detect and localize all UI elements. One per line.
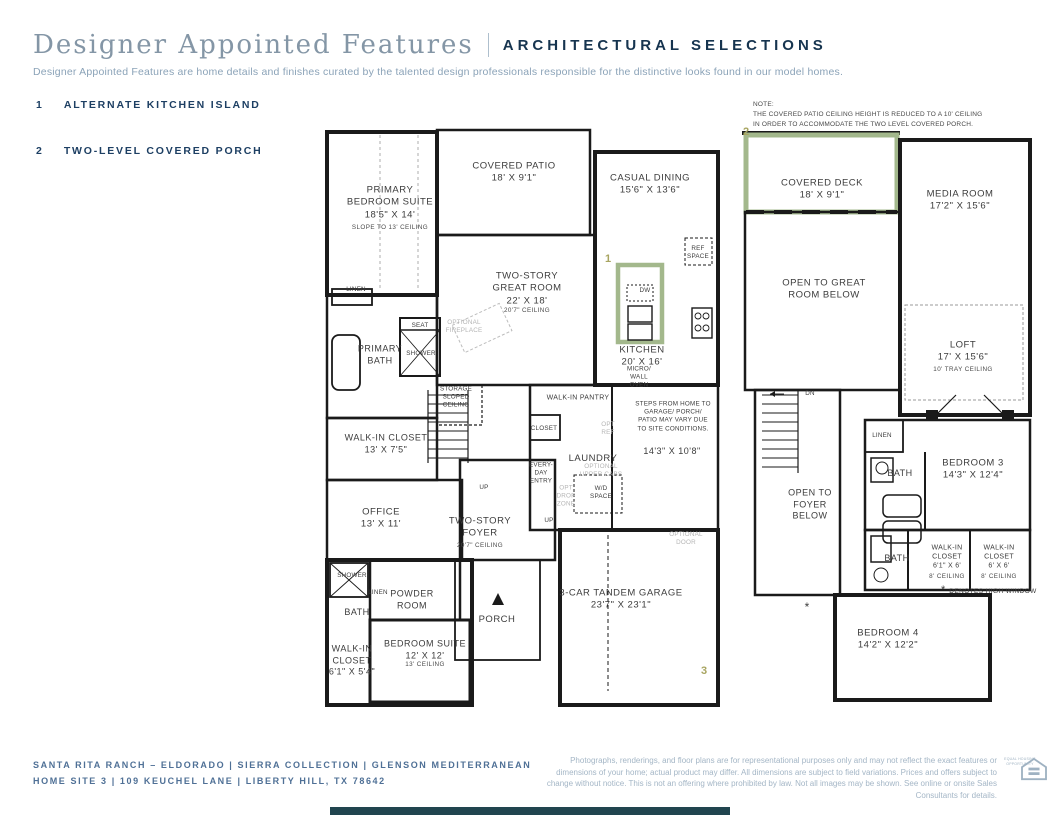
feature-marker-3: 3 — [701, 665, 707, 677]
page-title: Designer Appointed Features — [33, 30, 474, 60]
label-primary-suite: PRIMARY BEDROOM SUITE 18'5" X 14' — [347, 184, 433, 221]
label-bedroom-suite: BEDROOM SUITE 12' X 12' — [384, 638, 466, 661]
label-primary-bath: PRIMARY BATH — [358, 343, 402, 366]
label-media-room: MEDIA ROOM 17'2" X 15'6" — [927, 189, 994, 214]
footer-address-block: SANTA RITA RANCH – ELDORADO | SIERRA COL… — [33, 757, 531, 789]
label-covered-patio: COVERED PATIO 18' X 9'1" — [472, 161, 555, 186]
label-up-1: UP — [544, 517, 553, 525]
equal-housing-logo: EQUAL HOUSING OPPORTUNITY — [1003, 757, 1037, 766]
asterisk-mark: * — [941, 585, 945, 596]
label-covered-deck: COVERED DECK 18' X 9'1" — [781, 178, 863, 203]
label-walk-in-closet-4: WALK-IN CLOSET 6' X 6' — [983, 543, 1014, 570]
feature-label: ALTERNATE KITCHEN ISLAND — [64, 99, 261, 111]
label-walk-in-closet-1: WALK-IN CLOSET 13' X 7'5" — [345, 432, 428, 455]
label-walk-in-closet-3: WALK-IN CLOSET 6'1" X 6' — [931, 543, 962, 570]
label-walk-in-closet-3-ceiling: 8' CEILING — [929, 573, 965, 581]
label-great-room: TWO-STORY GREAT ROOM 22' X 18' — [492, 270, 561, 307]
plan-note: NOTE: THE COVERED PATIO CEILING HEIGHT I… — [753, 100, 982, 129]
label-walk-in-closet-4-ceiling: 8' CEILING — [981, 573, 1017, 581]
equal-housing-house-icon — [1020, 757, 1048, 781]
label-shower-2: SHOWER — [337, 572, 367, 580]
label-foyer: TWO-STORY FOYER — [449, 516, 511, 541]
label-ref-space: REF SPACE — [687, 245, 709, 261]
feature-marker-2: 2 — [743, 126, 749, 138]
label-shower-1: SHOWER — [406, 350, 436, 358]
label-dishwasher: DW — [640, 287, 651, 295]
label-loft-ceiling: 10' TRAY CEILING — [933, 366, 992, 374]
label-linen-3: LINEN — [872, 432, 892, 440]
page-edge-bar — [330, 807, 730, 815]
label-steps-note: STEPS FROM HOME TO GARAGE/ PORCH/ PATIO … — [635, 401, 710, 434]
page-header: Designer Appointed Features ARCHITECTURA… — [33, 30, 827, 60]
section-title: ARCHITECTURAL SELECTIONS — [503, 37, 827, 54]
label-up-2: UP — [479, 484, 488, 492]
title-divider — [488, 33, 489, 57]
label-great-room-ceiling: 20'7" CEILING — [504, 307, 550, 315]
label-walk-in-pantry: WALK-IN PANTRY — [547, 393, 610, 402]
label-foyer-ceiling: 20'7" CEILING — [457, 542, 503, 550]
label-walk-in-closet-2: WALK-IN CLOSET 6'1" X 5'4" — [329, 643, 375, 678]
label-open-to-foyer: OPEN TO FOYER BELOW — [788, 487, 832, 522]
second-floor-plan-drawing — [740, 123, 1040, 708]
feature-label: TWO-LEVEL COVERED PORCH — [64, 145, 263, 157]
footer-disclaimer: Photographs, renderings, and floor plans… — [535, 755, 997, 801]
label-bedroom-suite-ceiling: 13' CEILING — [405, 661, 445, 669]
feature-number: 2 — [36, 145, 42, 157]
label-wd-space: W/D SPACE — [590, 485, 612, 501]
label-optional-fireplace: OPTIONAL FIREPLACE — [446, 319, 483, 335]
page-description: Designer Appointed Features are home det… — [33, 66, 843, 78]
label-opt-drop-zone: OPT DROP ZONE — [557, 485, 576, 510]
label-bath-2: BATH — [887, 468, 912, 480]
label-mud-hall-dim: 14'3" X 10'8" — [643, 446, 700, 458]
high-window-asterisk: * — [805, 600, 810, 614]
label-opt-ref: OPT REF — [601, 421, 615, 437]
label-loft: LOFT 17' X 15'6" — [938, 340, 989, 365]
label-optional-upper-cabs: OPTIONAL UPPER CABS — [580, 463, 623, 479]
label-bedroom-3: BEDROOM 3 14'3" X 12'4" — [942, 458, 1004, 483]
footer-community-line: SANTA RITA RANCH – ELDORADO | SIERRA COL… — [33, 757, 531, 773]
label-open-to-great-room: OPEN TO GREAT ROOM BELOW — [782, 278, 866, 303]
label-dn: DN — [805, 390, 815, 398]
legend-text: DENOTES HIGH WINDOW — [949, 588, 1036, 595]
brochure-page: Designer Appointed Features ARCHITECTURA… — [0, 0, 1055, 815]
label-porch: PORCH — [479, 614, 516, 626]
label-casual-dining: CASUAL DINING 15'6" X 13'6" — [610, 173, 690, 198]
label-closet: CLOSET — [531, 425, 557, 433]
label-every-day-entry: EVERY- DAY ENTRY — [529, 462, 553, 487]
feature-item-1: 1 ALTERNATE KITCHEN ISLAND — [36, 99, 261, 111]
label-seat: SEAT — [412, 322, 429, 330]
label-optional-door: OPTIONAL DOOR — [669, 531, 702, 547]
label-garage: 3-CAR TANDEM GARAGE 23'7" X 23'1" — [559, 588, 682, 613]
label-bath-1: BATH — [344, 607, 369, 619]
feature-marker-1: 1 — [605, 253, 611, 265]
label-bath-3: BATH — [884, 553, 909, 565]
feature-number: 1 — [36, 99, 42, 111]
label-micro-wall-oven: MICRO/ WALL OVEN — [627, 366, 651, 391]
label-powder-room: POWDER ROOM — [390, 588, 434, 611]
footer-homesite-line: HOME SITE 3 | 109 KEUCHEL LANE | LIBERTY… — [33, 773, 531, 789]
label-storage-sloped-ceiling: STORAGE SLOPED CEILING — [440, 386, 472, 411]
label-linen-1: LINEN — [346, 286, 366, 294]
label-office: OFFICE 13' X 11' — [361, 507, 401, 532]
feature-item-2: 2 TWO-LEVEL COVERED PORCH — [36, 145, 263, 157]
label-bedroom-4: BEDROOM 4 14'2" X 12'2" — [857, 628, 919, 653]
label-primary-suite-ceiling: SLOPE TO 13' CEILING — [352, 224, 428, 232]
high-window-legend: * DENOTES HIGH WINDOW — [941, 585, 1037, 596]
label-linen-2: LINEN — [368, 589, 388, 597]
